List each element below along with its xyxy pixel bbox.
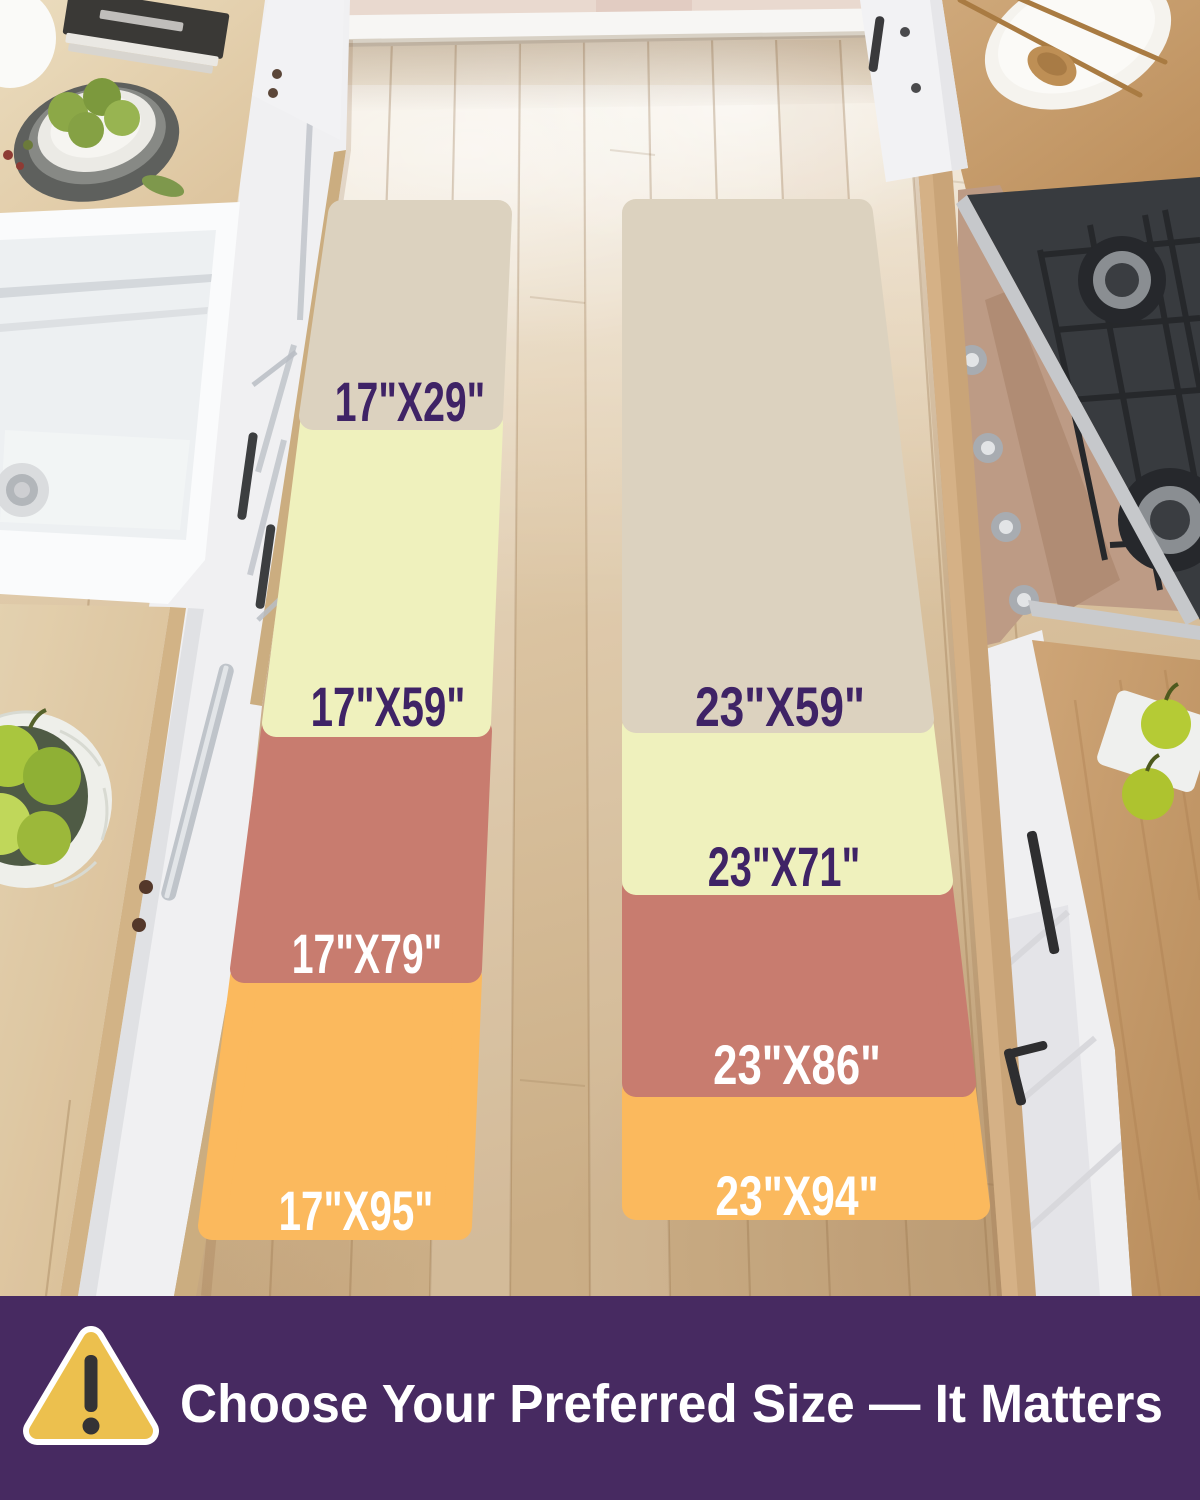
svg-text:23"X59": 23"X59" — [695, 675, 865, 738]
svg-text:17"X59": 17"X59" — [311, 677, 466, 739]
svg-text:23"X86": 23"X86" — [713, 1034, 881, 1096]
svg-text:17"X29": 17"X29" — [335, 371, 486, 434]
svg-text:23"X94": 23"X94" — [715, 1164, 878, 1227]
svg-text:17"X79": 17"X79" — [292, 923, 443, 986]
svg-text:Choose Your Preferred Size — I: Choose Your Preferred Size — It Matters — [180, 1374, 1163, 1434]
svg-text:17"X95": 17"X95" — [279, 1181, 434, 1243]
svg-text:23"X71": 23"X71" — [708, 836, 861, 898]
